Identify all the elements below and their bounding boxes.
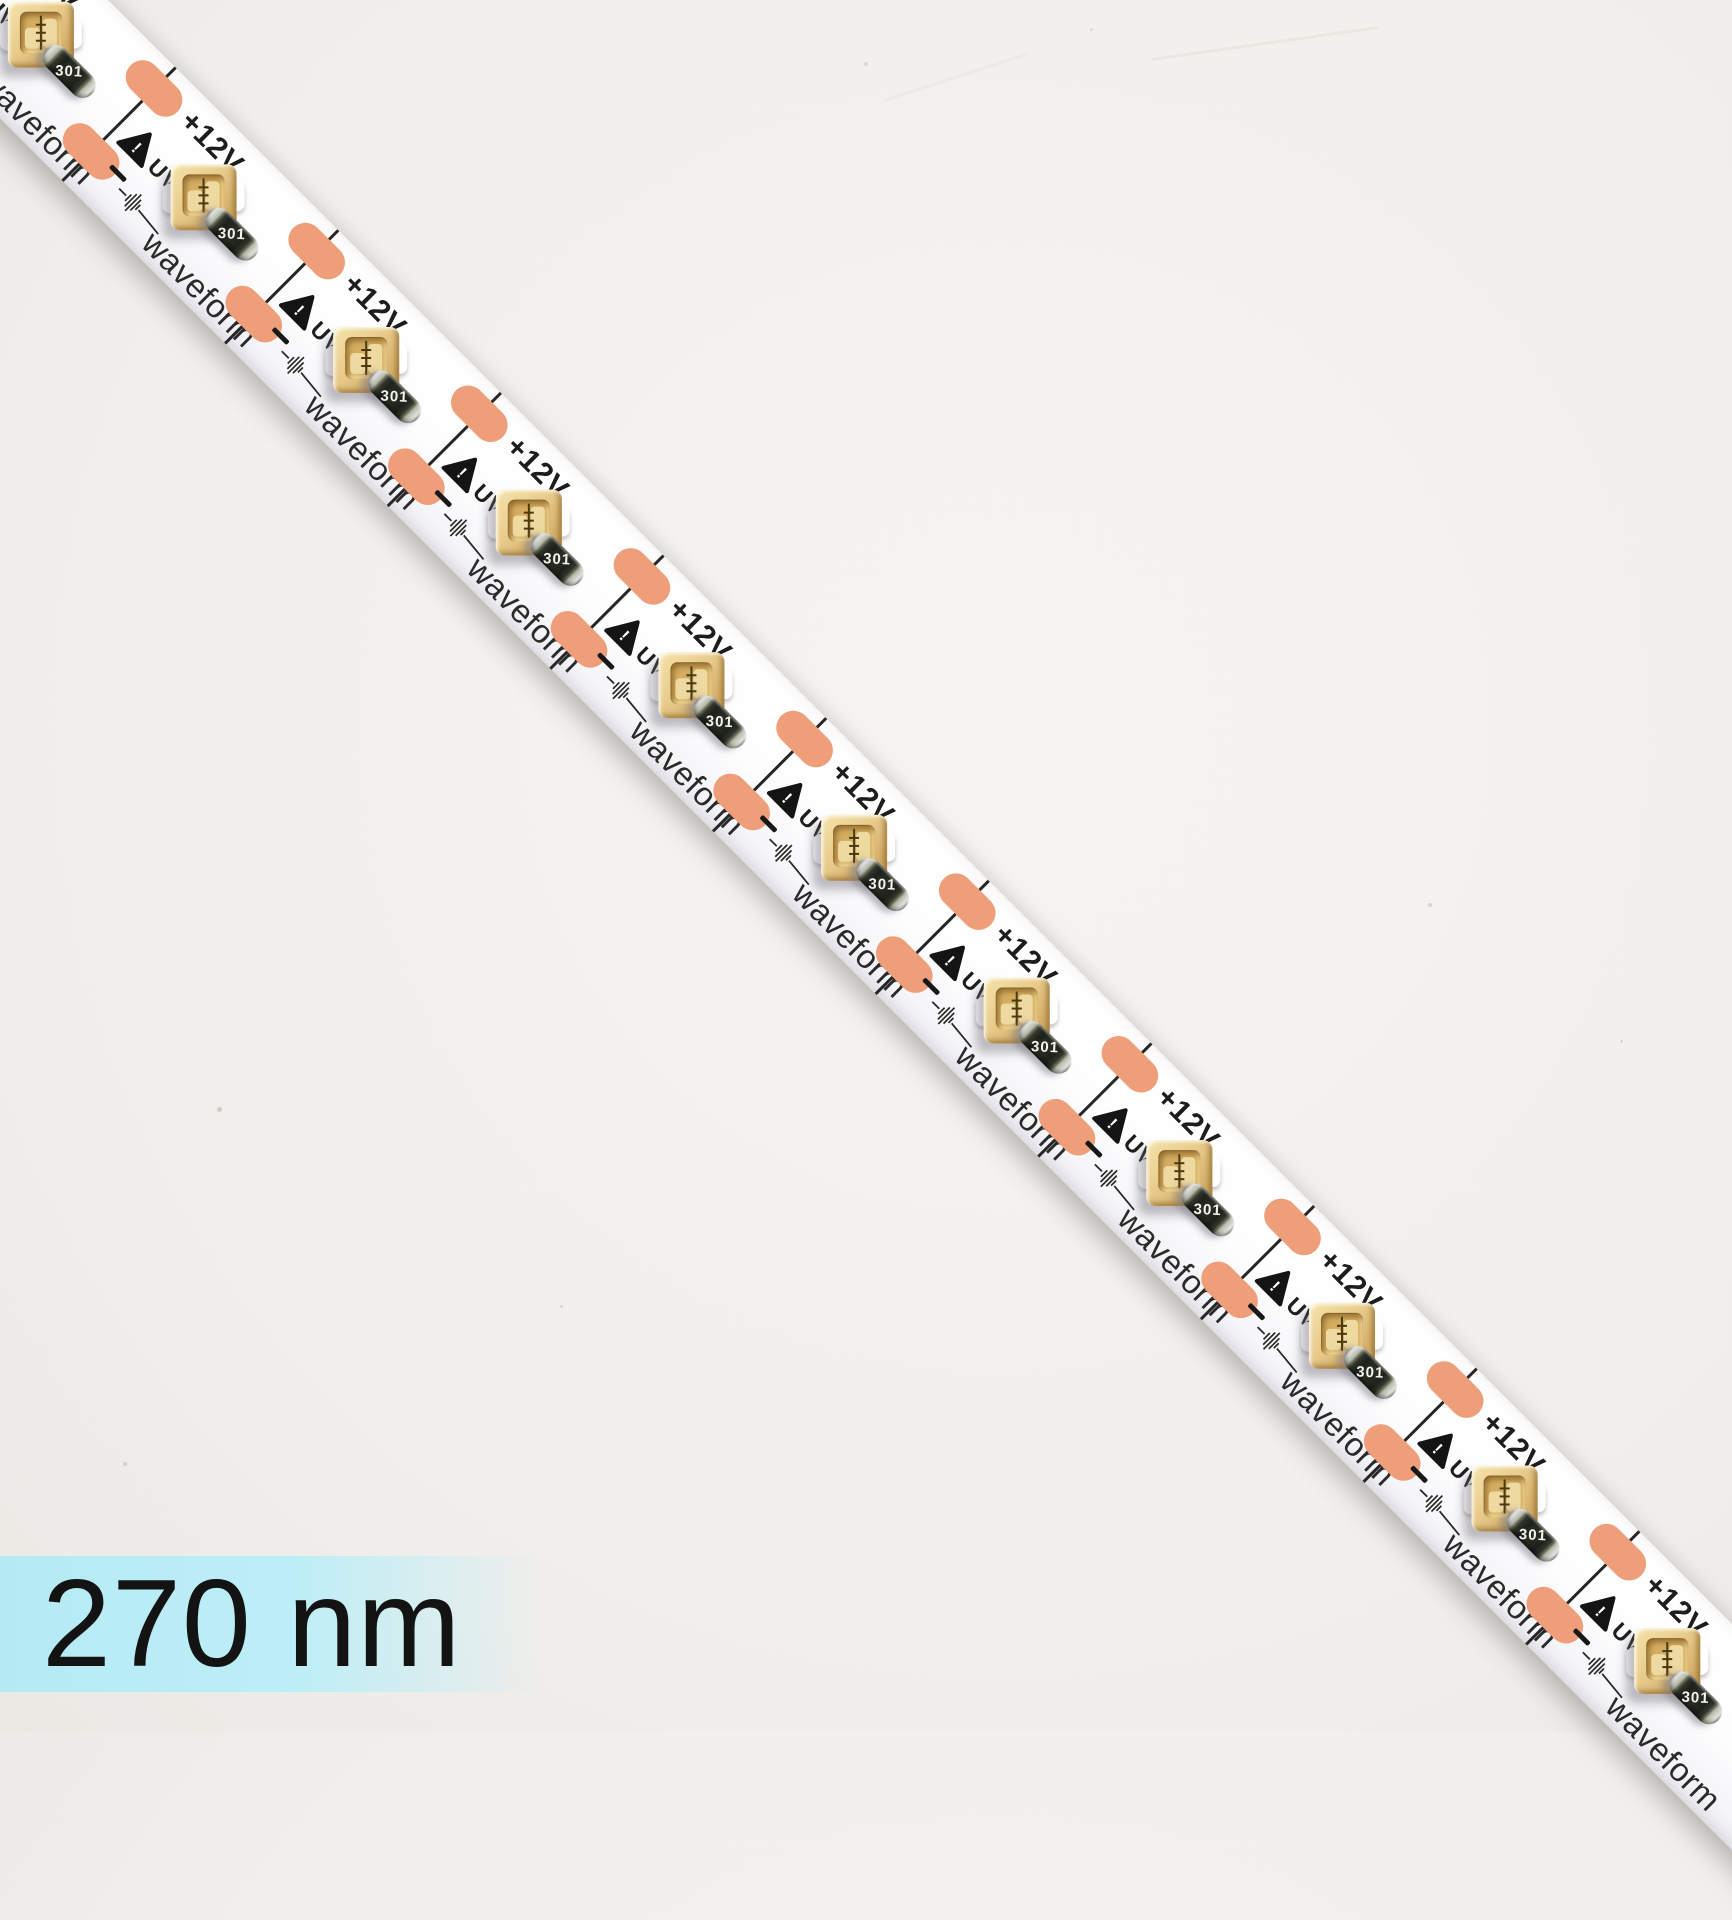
product-photo: { "image_type": "product-photo", "produc…	[0, 0, 1732, 1732]
led-bond-tick	[849, 845, 859, 847]
led-bond-tick	[1012, 1016, 1022, 1018]
resistor-code: 301	[380, 389, 409, 405]
led-bond-tick	[849, 837, 859, 839]
led-bond-tick	[686, 690, 696, 692]
resistor-code: 301	[217, 226, 246, 242]
wavelength-label: 270 nm	[0, 1553, 462, 1695]
resistor-code: 301	[868, 876, 897, 892]
resistor-code: 301	[705, 714, 734, 730]
resistor-code: 301	[1193, 1202, 1222, 1218]
resistor-code: 301	[1356, 1364, 1385, 1380]
led-bond-tick	[1174, 1170, 1184, 1172]
resistor-code: 301	[55, 63, 84, 79]
led-bond-tick	[36, 24, 46, 26]
led-bond-tick	[199, 194, 209, 196]
led-bond-tick	[1500, 1503, 1510, 1505]
led-bond-tick	[1174, 1178, 1184, 1180]
led-bond-tick	[1174, 1162, 1184, 1164]
resistor-code: 301	[1031, 1039, 1060, 1055]
led-bond-tick	[1500, 1495, 1510, 1497]
led-bond-tick	[1337, 1333, 1347, 1335]
led-bond-tick	[686, 682, 696, 684]
wavelength-badge: 270 nm	[0, 1556, 560, 1692]
paper-crease	[1151, 26, 1379, 61]
resistor-code: 301	[1681, 1690, 1710, 1706]
led-bond-tick	[36, 32, 46, 34]
resistor-code: 301	[543, 551, 572, 567]
led-bond-tick	[1337, 1341, 1347, 1343]
paper-speck	[1090, 28, 1093, 31]
led-bond-tick	[1012, 1000, 1022, 1002]
led-bond-tick	[199, 202, 209, 204]
led-bond-tick	[849, 853, 859, 855]
resistor-code: 301	[1519, 1527, 1548, 1543]
paper-crease	[883, 53, 1027, 102]
led-bond-tick	[1662, 1658, 1672, 1660]
paper-speck	[1620, 1040, 1623, 1043]
led-bond-tick	[1662, 1666, 1672, 1668]
paper-speck	[123, 1462, 127, 1466]
led-bond-tick	[1337, 1325, 1347, 1327]
led-bond-tick	[524, 512, 534, 514]
led-bond-tick	[361, 365, 371, 367]
led-bond-tick	[524, 528, 534, 530]
paper-speck	[217, 1107, 222, 1112]
led-bond-tick	[1662, 1650, 1672, 1652]
paper-speck	[1428, 903, 1432, 907]
led-bond-tick	[36, 40, 46, 42]
led-bond-tick	[686, 674, 696, 676]
led-bond-tick	[361, 357, 371, 359]
led-bond-tick	[199, 186, 209, 188]
led-bond-tick	[1012, 1008, 1022, 1010]
led-bond-tick	[524, 520, 534, 522]
paper-speck	[864, 62, 868, 66]
led-bond-tick	[1500, 1487, 1510, 1489]
led-bond-tick	[361, 349, 371, 351]
paper-speck	[560, 1305, 563, 1308]
